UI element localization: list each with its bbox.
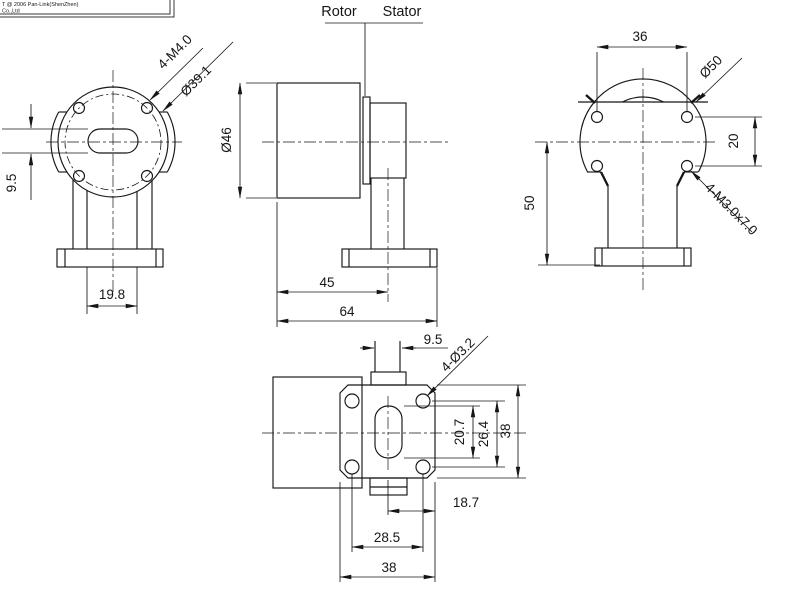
drawing-sheet: T @ 2006 Pan-Link(ShenZhen) Co.,Ltd (0, 0, 800, 612)
dim-text-28.5: 28.5 (374, 530, 400, 545)
dim-text-20: 20 (726, 133, 741, 148)
dim-text-9.5: 9.5 (4, 174, 19, 193)
dim-text-38v: 38 (498, 423, 513, 438)
dim-text-9.5b: 9.5 (424, 332, 443, 347)
dim-text-38h: 38 (381, 560, 396, 575)
dim-text-d46: Ø46 (219, 127, 234, 153)
dim-text-36: 36 (632, 29, 647, 44)
engineering-drawing-canvas: T @ 2006 Pan-Link(ShenZhen) Co.,Ltd (0, 0, 800, 612)
dim-text-18.7: 18.7 (453, 495, 479, 510)
dim-text-50: 50 (522, 195, 537, 210)
dim-text-20.7: 20.7 (452, 419, 467, 445)
label-stator: Stator (383, 4, 422, 20)
dim-text-45: 45 (319, 275, 334, 290)
title-block-line2: Co.,Ltd (2, 9, 20, 15)
dim-text-64: 64 (339, 304, 355, 319)
label-rotor: Rotor (321, 4, 357, 20)
title-block-line1: T @ 2006 Pan-Link(ShenZhen) (2, 2, 79, 8)
dim-text-26.4: 26.4 (476, 420, 491, 447)
dim-text-19.8: 19.8 (99, 287, 125, 302)
